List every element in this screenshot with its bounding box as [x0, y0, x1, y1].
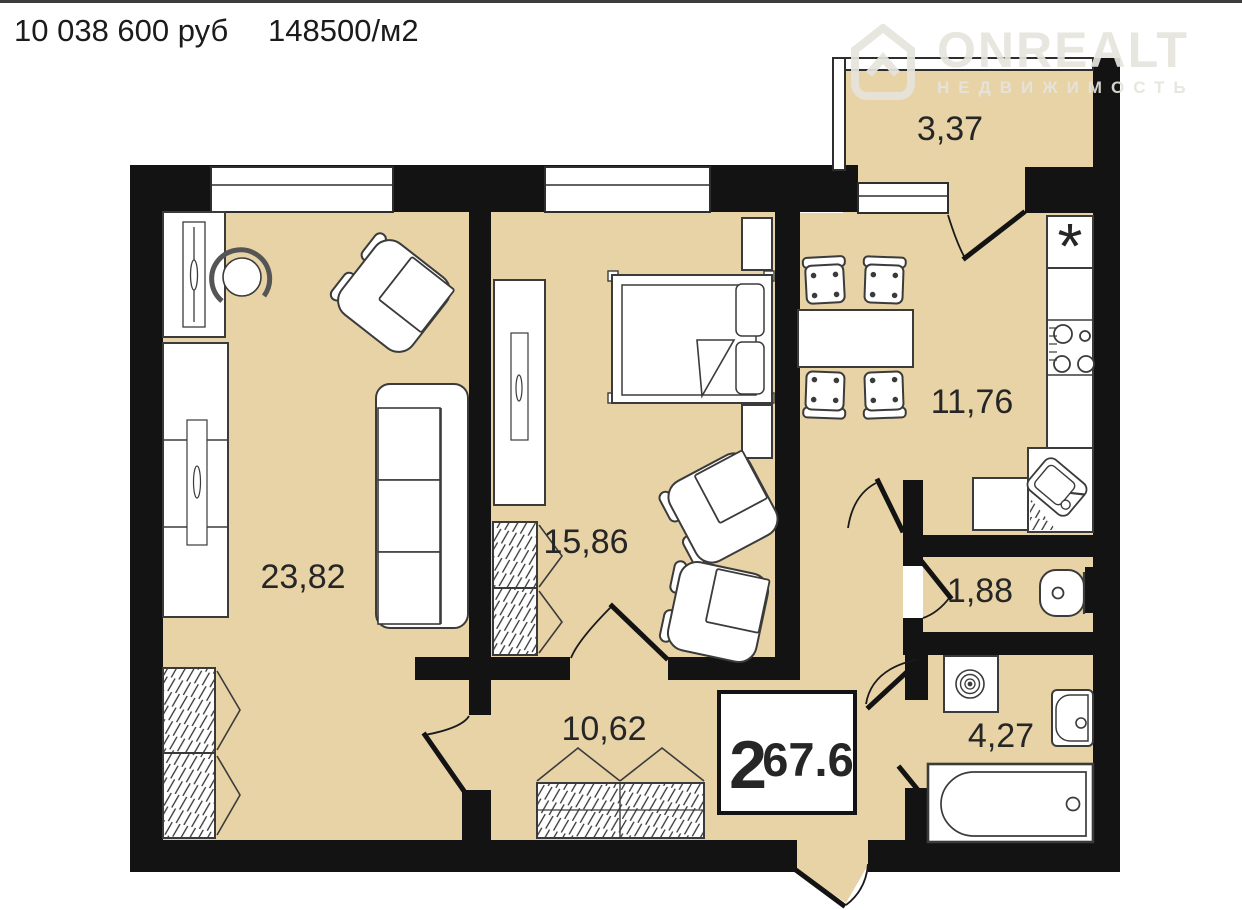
wall-balcony-kitchen — [1025, 167, 1093, 213]
wall-wc-left-top — [903, 557, 923, 566]
wardrobe-living — [163, 343, 228, 617]
dining-table — [798, 310, 913, 367]
wall-bath-west-bottom — [905, 788, 928, 845]
balcony-glazing-top — [833, 58, 1093, 70]
wall-living-door-stub — [462, 790, 491, 845]
washing-machine — [944, 656, 998, 712]
wall-wc-top — [903, 535, 1093, 557]
sofa — [376, 384, 468, 628]
balcony-glazing-left — [833, 58, 845, 170]
dining-chair-2 — [862, 256, 906, 303]
wall-wc-bottom — [903, 632, 1093, 655]
floor-corridor — [800, 480, 903, 680]
summary-total-area: 67.6 — [762, 733, 853, 786]
kitchen-sink-unit — [1024, 448, 1093, 532]
room-label-wc: 1,88 — [947, 572, 1013, 610]
room-label-living: 23,82 — [260, 558, 345, 596]
dining-chair-3 — [803, 371, 847, 418]
room-label-kitchen: 11,76 — [931, 383, 1014, 421]
room-label-bedroom: 15,86 — [543, 523, 628, 561]
window-bedroom — [545, 167, 710, 212]
window-living — [211, 167, 393, 212]
wall-left — [130, 165, 163, 872]
toilet — [1040, 570, 1084, 616]
wall-bedroom-kitchen — [775, 212, 800, 680]
window-balcony-kitchen — [858, 183, 948, 213]
floorplan-page: 10 038 600 руб 148500/м2 — [0, 0, 1242, 910]
summary-box: 2 67.6 — [719, 692, 855, 813]
double-bed — [608, 271, 774, 403]
wall-bedroom-bottom-left — [415, 657, 570, 680]
wardrobe-bedroom — [494, 280, 545, 505]
cabinet-top-left — [163, 212, 225, 337]
wall-wc-left-bottom — [903, 618, 923, 632]
nightstand-bottom — [742, 405, 772, 458]
room-label-hallway: 10,62 — [561, 710, 646, 748]
room-label-bathroom: 4,27 — [968, 717, 1034, 755]
wall-right — [1093, 58, 1120, 872]
floor-plan: * — [0, 0, 1242, 910]
dining-chair-4 — [862, 371, 906, 418]
room-label-balcony: 3,37 — [917, 110, 983, 148]
summary-rooms-count: 2 — [729, 727, 767, 803]
bathtub — [928, 764, 1093, 842]
counter-small — [973, 478, 1028, 530]
nightstand-top — [742, 218, 772, 270]
dining-chair-1 — [803, 256, 847, 304]
wall-living-bedroom — [469, 212, 491, 715]
wash-basin — [1052, 690, 1093, 746]
wall-toilet-tank — [1085, 567, 1093, 613]
